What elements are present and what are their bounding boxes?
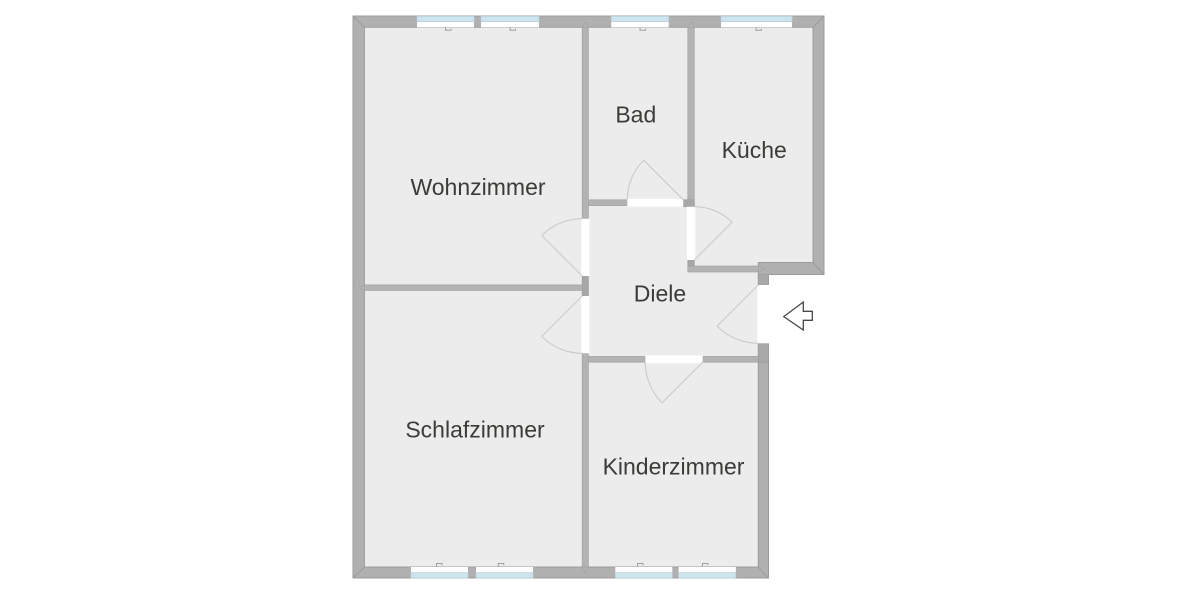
svg-text:Kinderzimmer: Kinderzimmer [603,454,745,480]
svg-text:Bad: Bad [615,102,656,128]
svg-text:Wohnzimmer: Wohnzimmer [410,174,545,200]
svg-text:Küche: Küche [722,137,787,163]
svg-text:Schlafzimmer: Schlafzimmer [405,416,545,442]
svg-text:Diele: Diele [634,281,686,307]
